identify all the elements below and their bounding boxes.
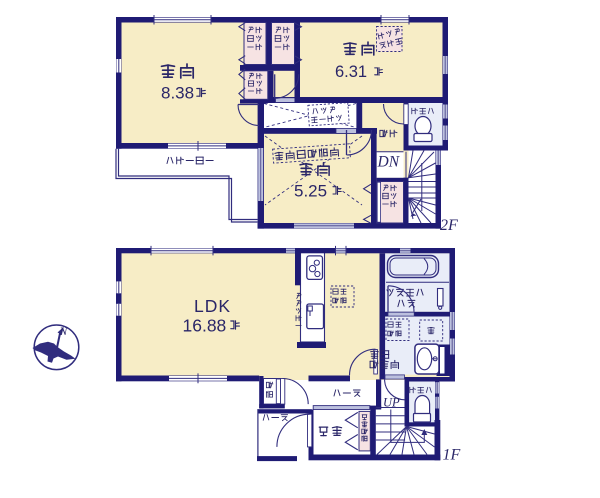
svg-text:5.25: 5.25 (294, 182, 327, 201)
svg-text:8.38: 8.38 (161, 84, 194, 103)
svg-text:2F: 2F (440, 217, 458, 234)
svg-text:1F: 1F (443, 447, 461, 464)
svg-text:6.31: 6.31 (335, 63, 367, 81)
svg-text:LDK: LDK (194, 296, 231, 316)
svg-text:16.88: 16.88 (183, 316, 227, 336)
svg-text:DN: DN (377, 154, 401, 171)
svg-text:N: N (59, 326, 69, 338)
